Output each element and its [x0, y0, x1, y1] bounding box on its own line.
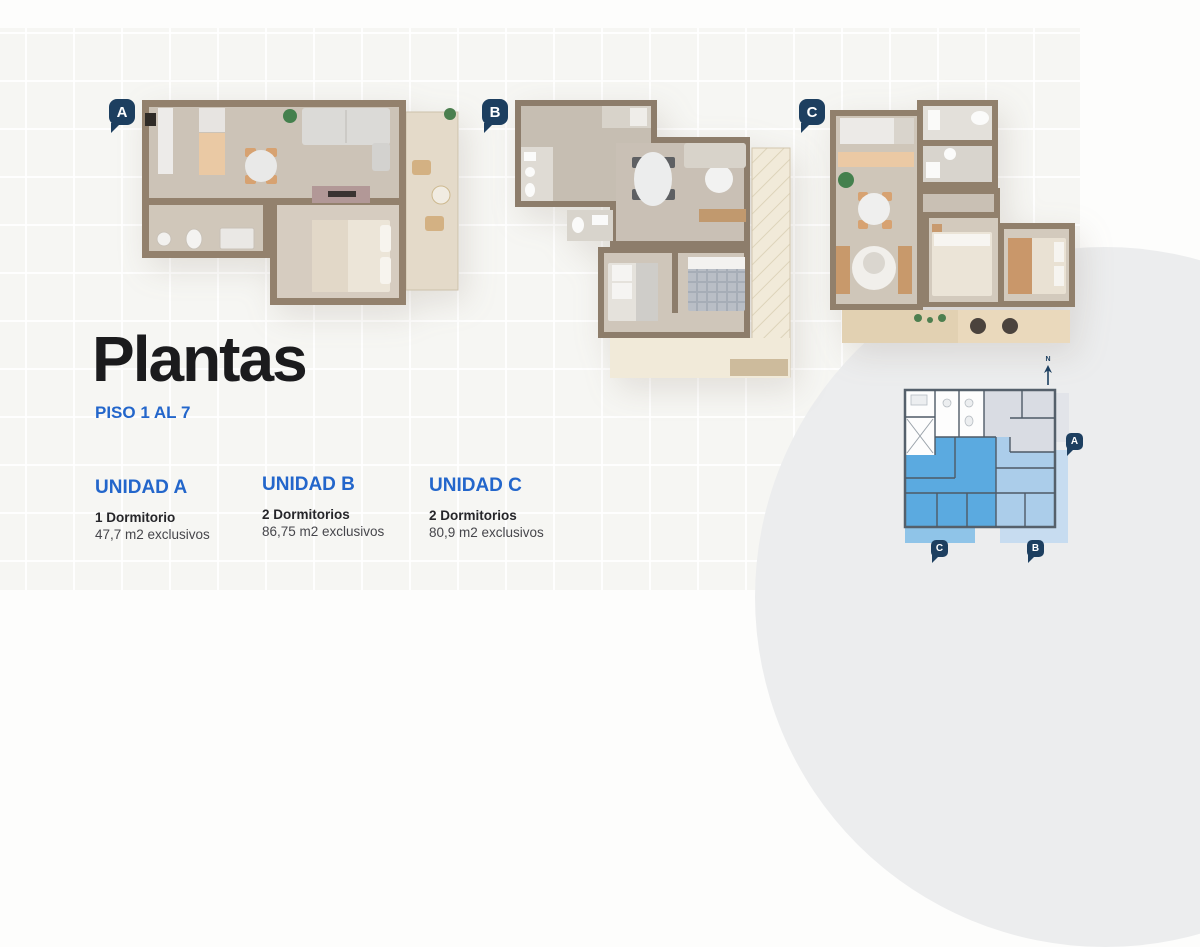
unit-c-name: UNIDAD C [429, 475, 544, 497]
north-arrow-icon: N [1042, 356, 1054, 390]
brochure-page: A B C Plantas PISO 1 AL 7 UNIDAD A 1 Dor… [0, 0, 1200, 620]
north-label: N [1042, 356, 1054, 363]
keyplan-c-marker-icon: C [931, 540, 948, 557]
unit-b-bedrooms: 2 Dormitorios [262, 507, 384, 522]
unit-c-bedrooms: 2 Dormitorios [429, 508, 544, 523]
page-subtitle: PISO 1 AL 7 [95, 403, 190, 423]
key-plan-image [897, 383, 1075, 570]
unit-c-info: UNIDAD C 2 Dormitorios 80,9 m2 exclusivo… [429, 475, 544, 540]
unit-b-area: 86,75 m2 exclusivos [262, 524, 384, 539]
unit-a-marker-icon: A [109, 99, 135, 125]
floor-plan-c-image [828, 96, 1078, 346]
unit-b-info: UNIDAD B 2 Dormitorios 86,75 m2 exclusiv… [262, 474, 384, 539]
keyplan-a-marker-icon: A [1066, 433, 1083, 450]
unit-a-info: UNIDAD A 1 Dormitorio 47,7 m2 exclusivos [95, 477, 210, 542]
unit-a-area: 47,7 m2 exclusivos [95, 527, 210, 542]
page-title: Plantas [92, 322, 306, 396]
unit-b-name: UNIDAD B [262, 474, 384, 496]
floor-plan-b-image [512, 97, 792, 381]
unit-c-area: 80,9 m2 exclusivos [429, 525, 544, 540]
unit-a-bedrooms: 1 Dormitorio [95, 510, 210, 525]
unit-c-marker-icon: C [799, 99, 825, 125]
unit-b-marker-icon: B [482, 99, 508, 125]
unit-a-name: UNIDAD A [95, 477, 210, 499]
floor-plan-a-image [142, 98, 460, 310]
keyplan-b-marker-icon: B [1027, 540, 1044, 557]
